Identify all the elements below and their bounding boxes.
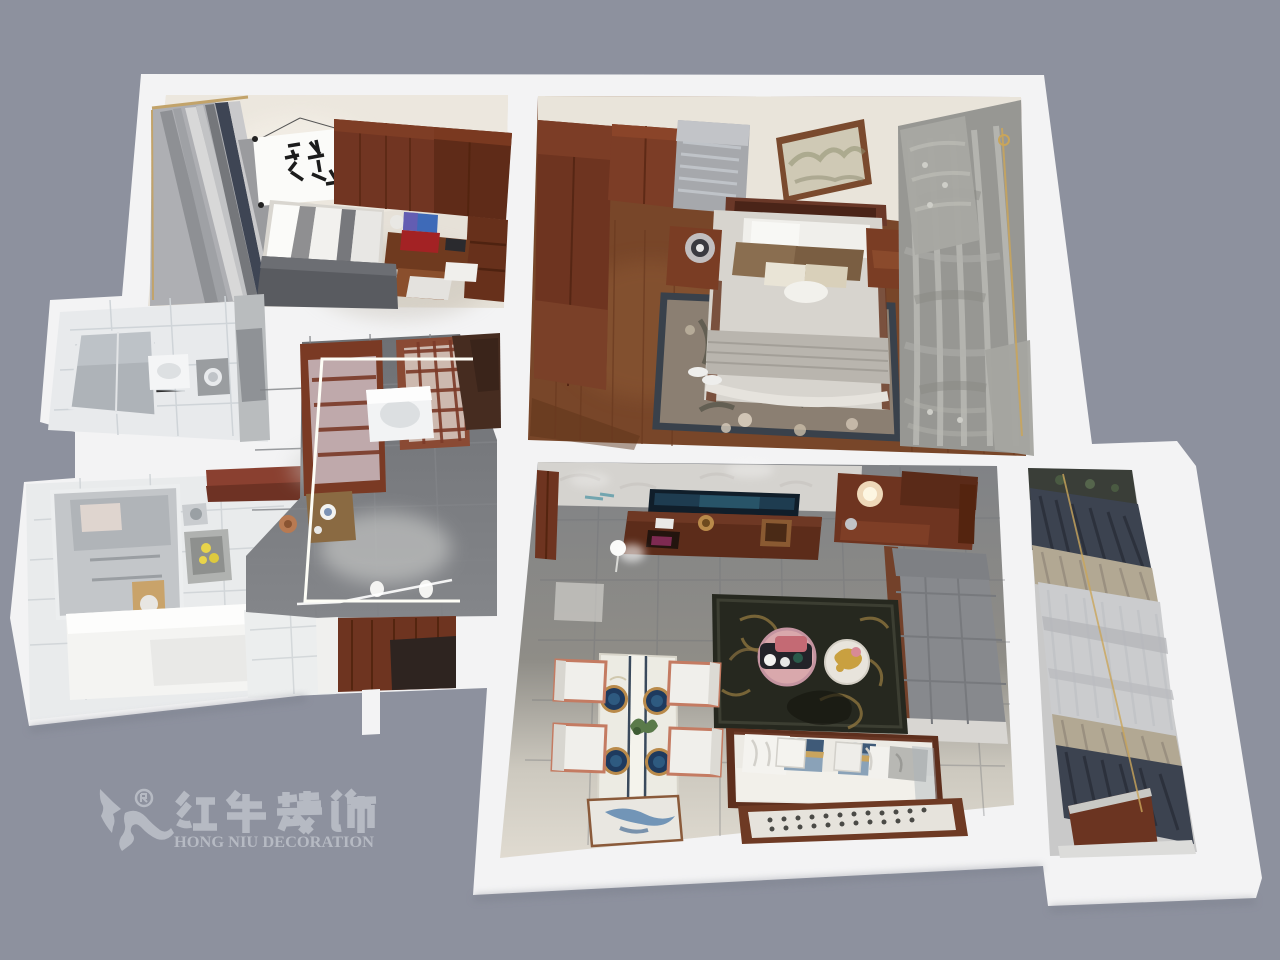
svg-text:HONG NIU DECORATION: HONG NIU DECORATION: [174, 834, 374, 851]
